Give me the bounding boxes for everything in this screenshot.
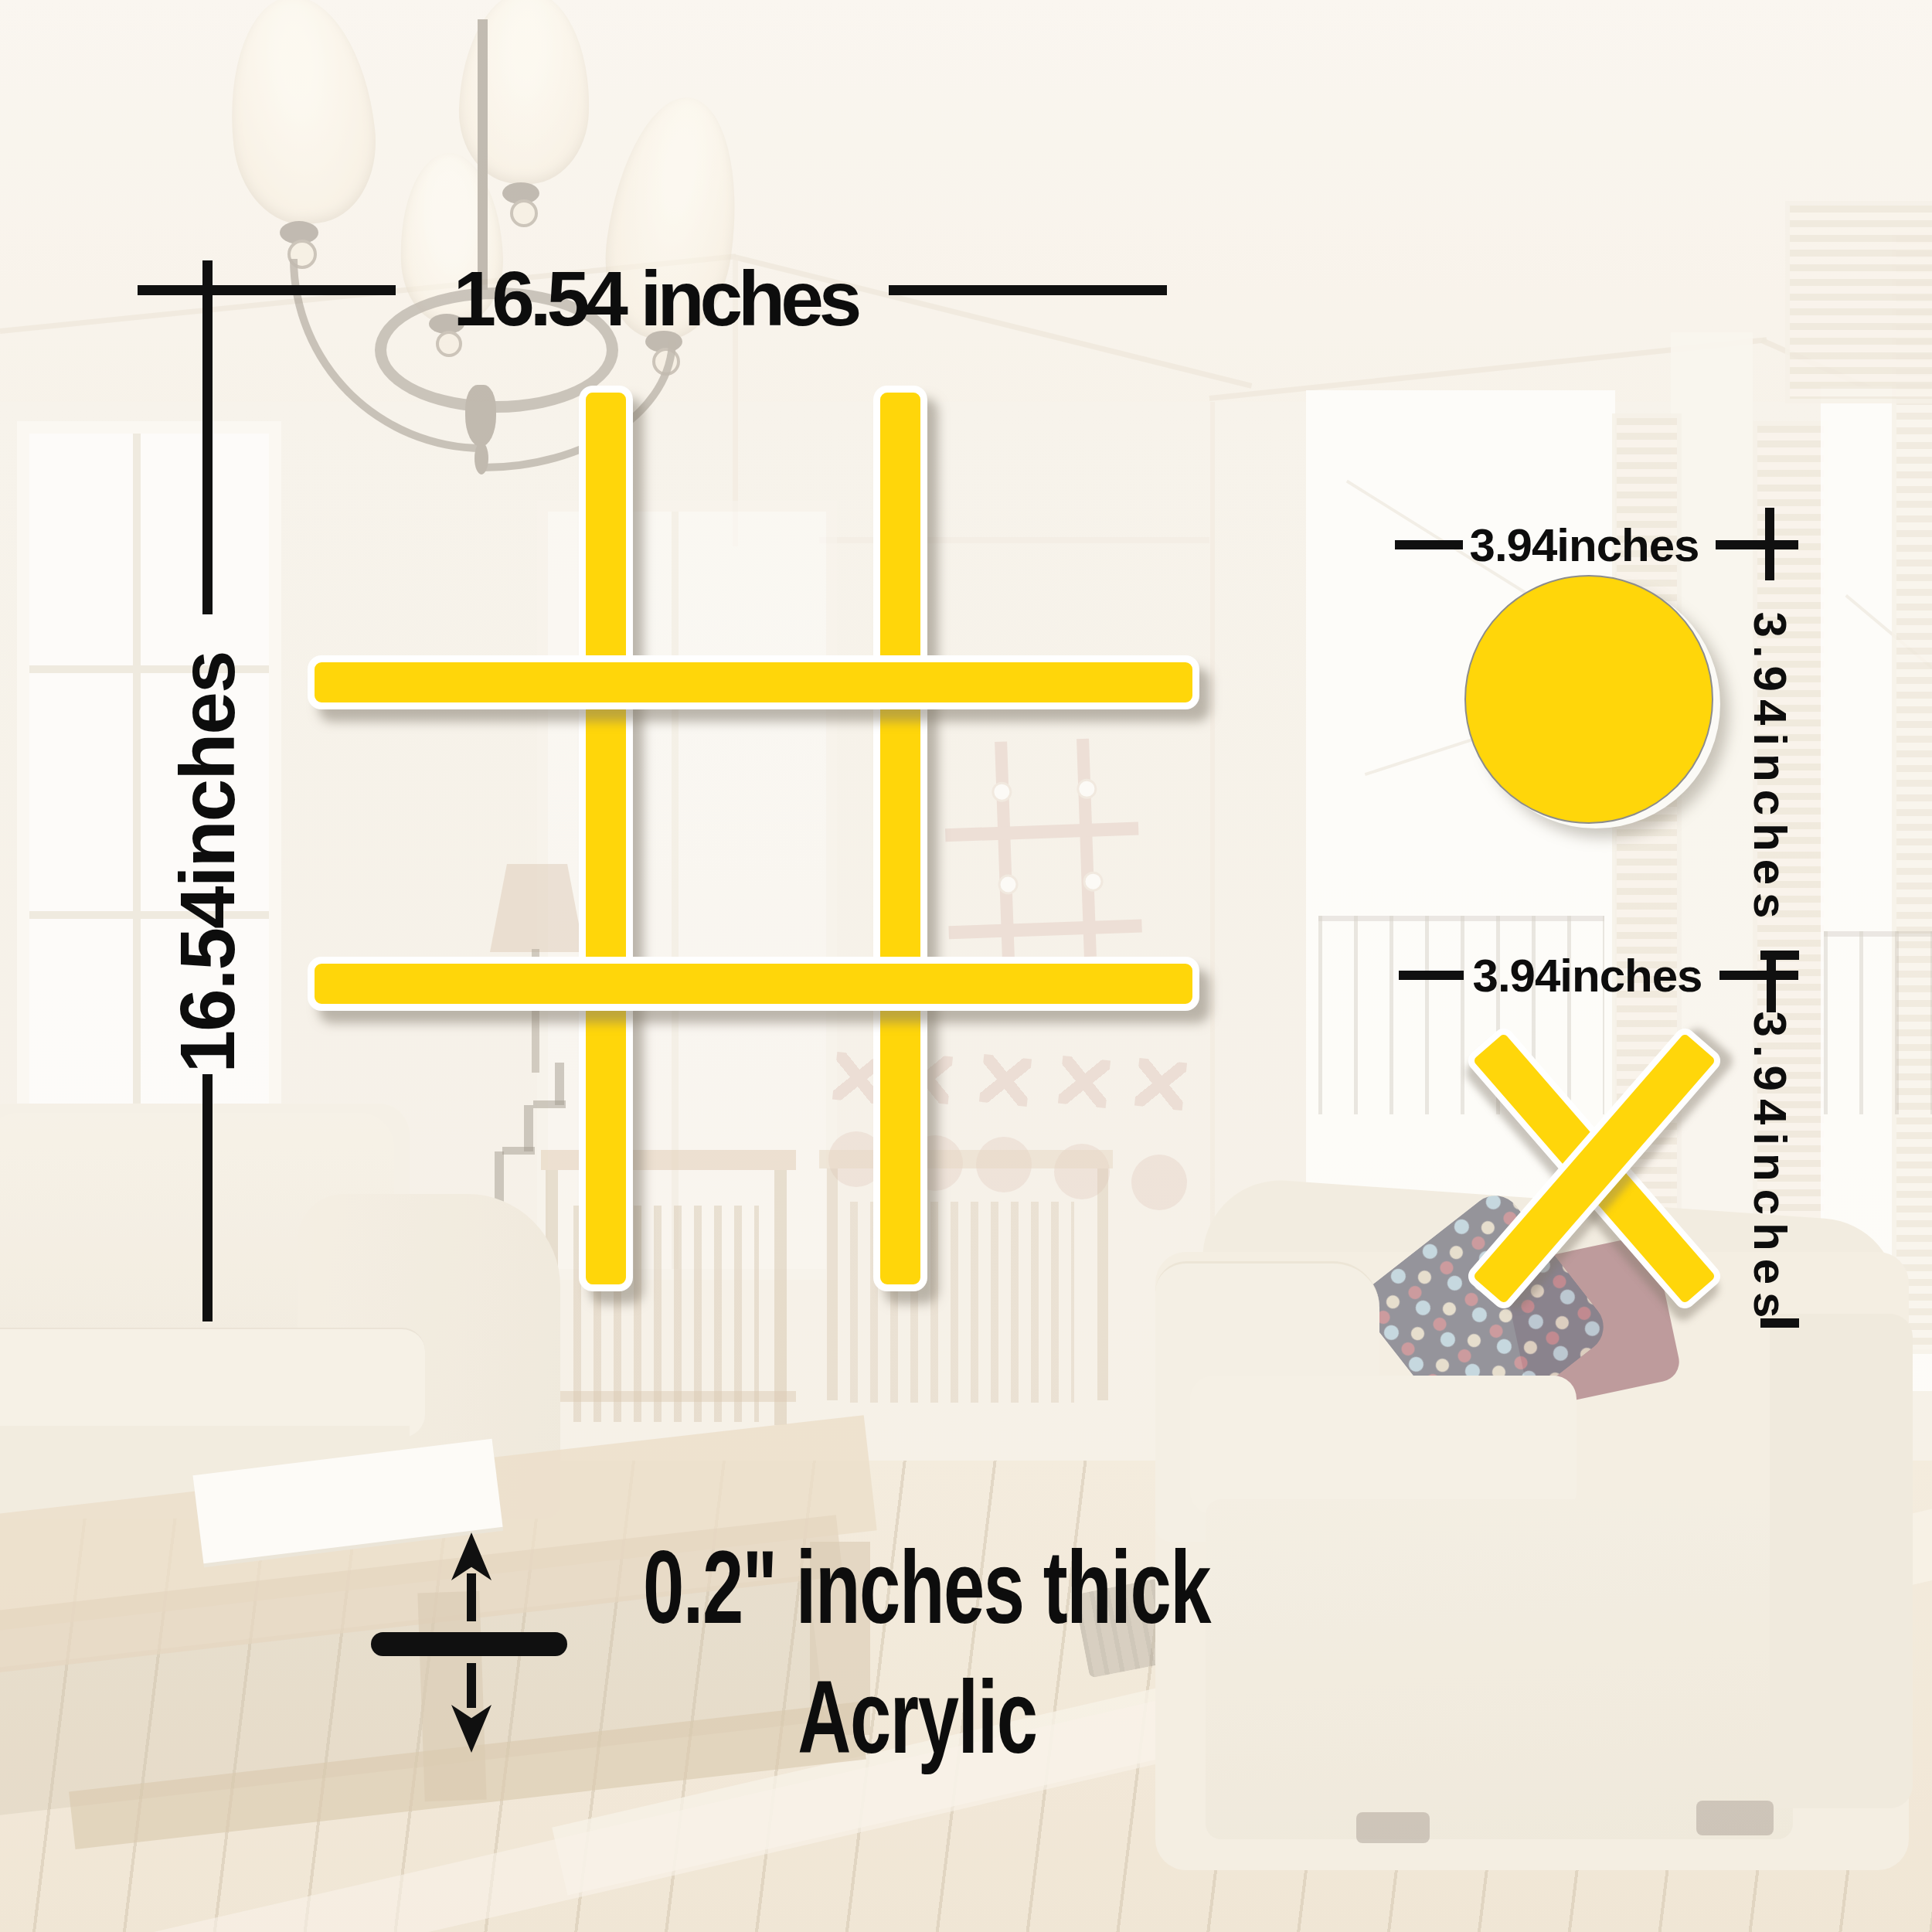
width-dim-line-right xyxy=(889,285,1167,295)
thickness-label-text: 0.2" inches thick xyxy=(643,1536,1210,1639)
x-dim-tick-bottom xyxy=(1760,1318,1799,1328)
x-dim-tick-top xyxy=(1767,954,1776,1012)
circle-width-label: 3.94inches xyxy=(1470,522,1699,569)
grid-vertical-bar-right xyxy=(873,386,927,1291)
height-dim-line-top xyxy=(202,260,213,614)
circle-width-dash-right xyxy=(1716,540,1798,549)
x-height-label: 3.94inches xyxy=(1747,1012,1793,1326)
width-dim-line-left xyxy=(138,285,396,295)
height-dim-line-bottom xyxy=(202,1074,213,1321)
circle-width-dash-left xyxy=(1395,540,1463,549)
circle-dim-tick-top xyxy=(1765,508,1774,580)
grid-vertical-bar-left xyxy=(579,386,633,1291)
grid-horizontal-bar-top xyxy=(308,655,1199,709)
thickness-label: 0.2" inches thick xyxy=(532,1536,1321,1639)
x-width-label: 3.94inches xyxy=(1473,953,1702,999)
material-label-text: Acrylic xyxy=(798,1666,1036,1769)
up-arrow-shaft xyxy=(467,1573,476,1621)
grid-horizontal-bar-bottom xyxy=(308,957,1199,1011)
circle-height-label: 3.94inches xyxy=(1747,612,1793,927)
down-arrow-shaft xyxy=(467,1663,476,1708)
x-width-dash-left xyxy=(1399,971,1464,980)
product-infographic-page: { "labels": { "grid_width": "16.54 inche… xyxy=(0,0,1932,1932)
grid-width-label: 16.54 inches xyxy=(454,260,858,337)
circle-piece xyxy=(1464,575,1713,824)
grid-height-label: 16.54inches xyxy=(168,651,246,1073)
x-width-dash-right xyxy=(1719,971,1798,980)
material-label: Acrylic xyxy=(751,1666,1083,1769)
